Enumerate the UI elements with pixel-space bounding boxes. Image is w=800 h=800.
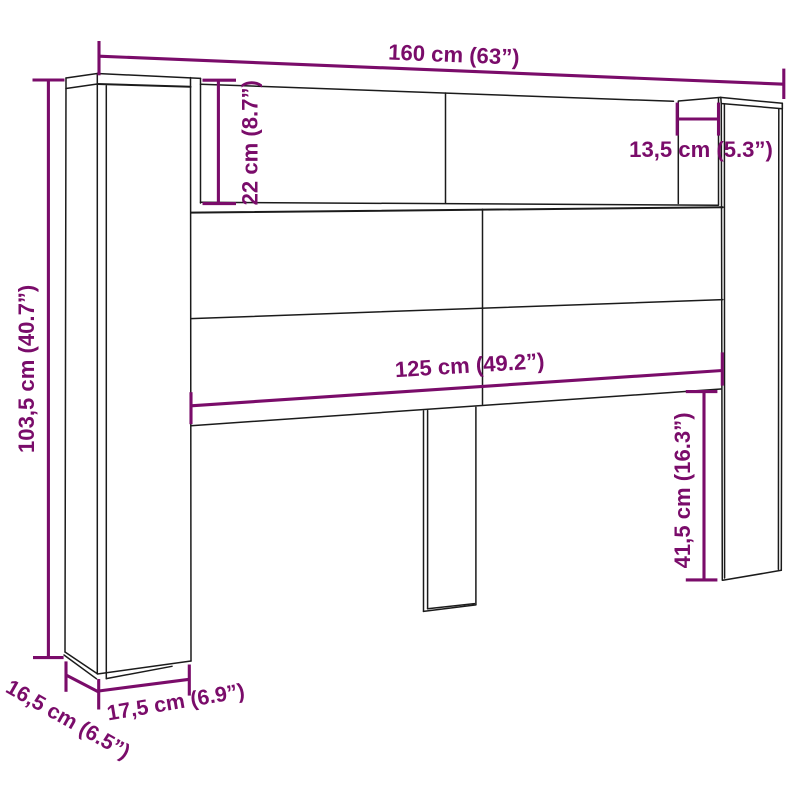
svg-text:13,5 cm (5.3”): 13,5 cm (5.3”) (629, 137, 773, 162)
svg-text:41,5 cm (16.3”): 41,5 cm (16.3”) (670, 412, 695, 568)
svg-text:22 cm (8.7”): 22 cm (8.7”) (237, 80, 262, 205)
svg-text:160 cm (63”): 160 cm (63”) (388, 39, 520, 69)
svg-text:103,5 cm (40.7”): 103,5 cm (40.7”) (14, 285, 39, 453)
